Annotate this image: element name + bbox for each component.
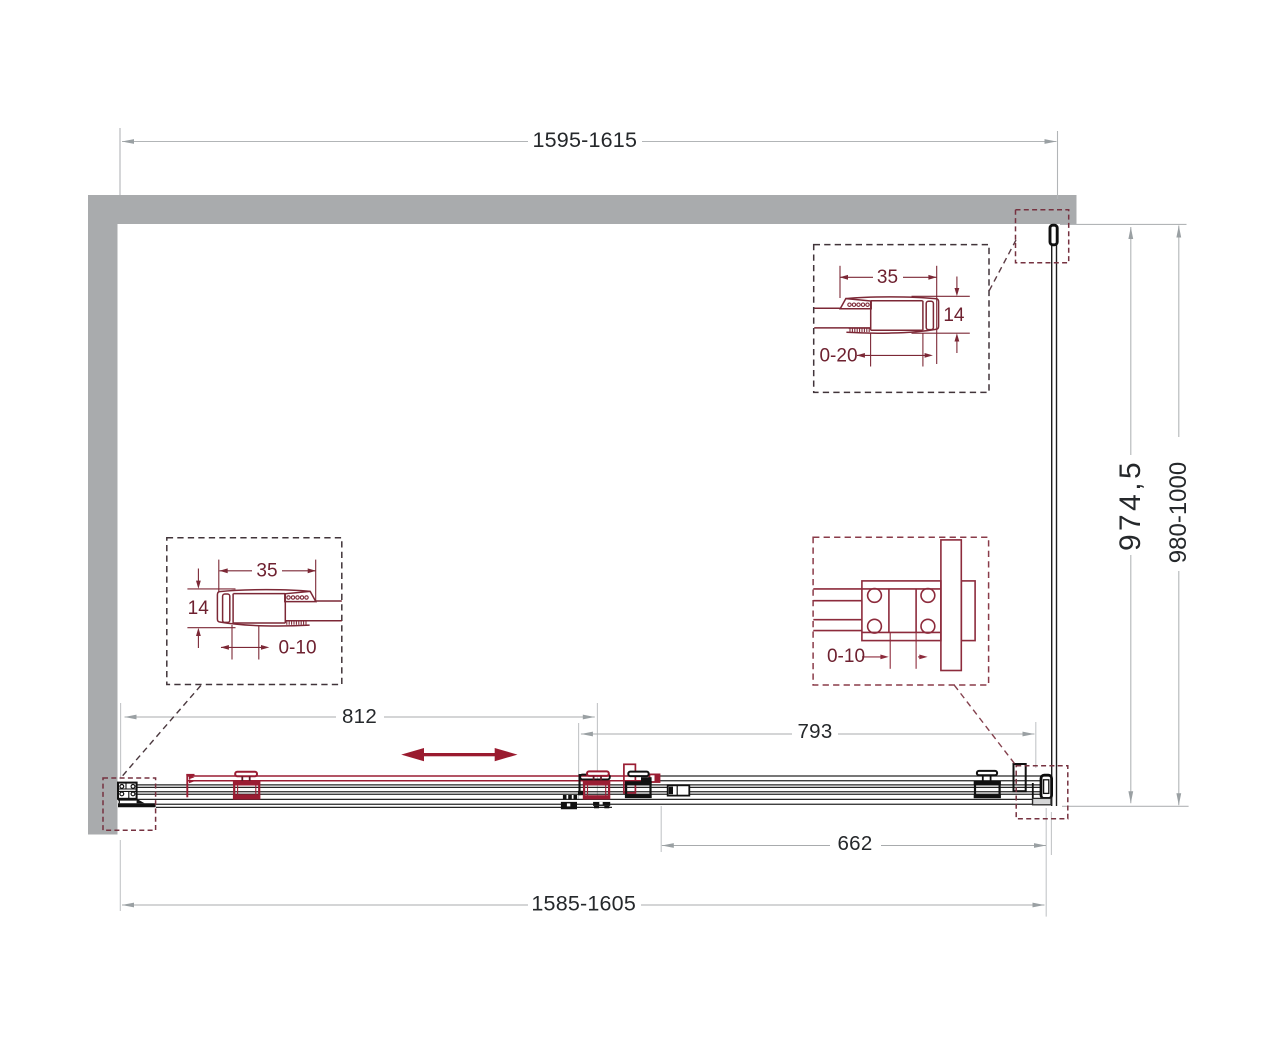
svg-text:0-20: 0-20	[819, 346, 857, 367]
svg-text:1595-1615: 1595-1615	[532, 128, 637, 152]
svg-text:0-10: 0-10	[827, 646, 865, 667]
svg-text:0-10: 0-10	[278, 638, 316, 659]
svg-text:14: 14	[188, 598, 210, 619]
svg-text:35: 35	[877, 267, 898, 288]
svg-text:14: 14	[943, 305, 965, 326]
svg-text:974,5: 974,5	[1114, 459, 1147, 551]
svg-text:980-1000: 980-1000	[1165, 462, 1192, 563]
svg-text:662: 662	[837, 832, 872, 855]
svg-text:35: 35	[256, 560, 277, 581]
svg-text:1585-1605: 1585-1605	[531, 892, 636, 916]
svg-text:812: 812	[342, 705, 377, 728]
svg-text:793: 793	[797, 720, 832, 743]
